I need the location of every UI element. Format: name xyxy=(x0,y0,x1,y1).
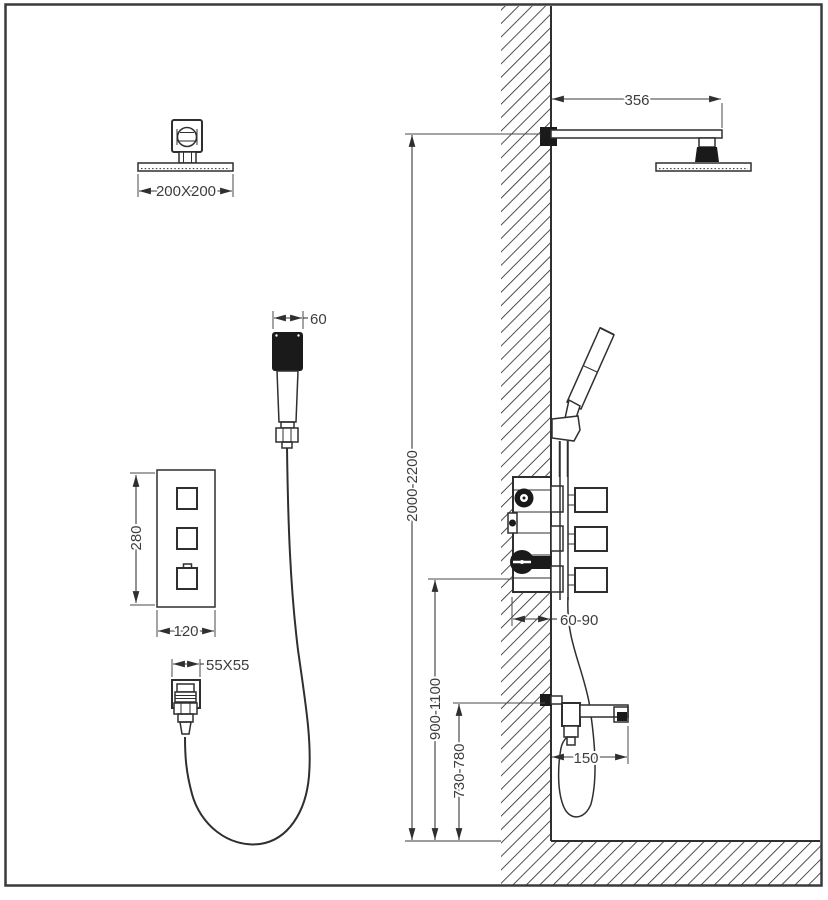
dim-panel-height: 280 xyxy=(128,473,155,605)
label-head-size: 200X200 xyxy=(156,183,216,200)
spout-side-view xyxy=(540,694,628,745)
shower-arm xyxy=(551,130,722,138)
ball-joint xyxy=(695,147,719,162)
shower-arm-side-view xyxy=(540,127,751,171)
label-panel-height: 280 xyxy=(128,525,145,550)
label-valve-height: 900-1100 xyxy=(427,678,444,740)
panel-button-2 xyxy=(177,528,197,549)
dim-panel-width: 120 xyxy=(157,610,215,640)
label-spout-height: 730-780 xyxy=(451,743,468,798)
panel-button-1 xyxy=(177,488,197,509)
spout-diverter xyxy=(564,726,578,737)
dim-valve-height: 900-1100 xyxy=(427,579,513,840)
diagram-canvas: 200X200 60 280 120 55X55 xyxy=(0,0,828,900)
floor-hatch xyxy=(551,841,821,885)
hand-shower-head xyxy=(272,332,303,371)
overhead-shower-front-view xyxy=(138,120,233,171)
dim-outlet-size: 55X55 xyxy=(172,657,249,677)
label-valve-depth: 60-90 xyxy=(560,612,598,629)
wall-outlet-front-view xyxy=(172,680,200,734)
label-spout-reach: 150 xyxy=(573,750,598,767)
diagram-page: 200X200 60 280 120 55X55 xyxy=(0,0,828,900)
holder-bracket xyxy=(552,416,580,441)
dim-handshower-width: 60 xyxy=(273,311,327,329)
control-panel-front-view xyxy=(157,470,215,607)
rain-head-plate xyxy=(656,163,751,171)
label-overhead-height: 2000-2200 xyxy=(404,450,421,522)
dimensions: 200X200 60 280 120 55X55 xyxy=(128,92,722,840)
spout-body xyxy=(562,703,580,726)
panel-button-3 xyxy=(177,568,197,589)
valve-handle-2 xyxy=(575,527,607,551)
hand-shower-handle xyxy=(277,371,298,422)
dim-head-size: 200X200 xyxy=(138,174,233,200)
valve-handle-1 xyxy=(575,488,607,512)
hand-shower-holder-side-view xyxy=(552,328,614,478)
valve-handle-3 xyxy=(575,568,607,592)
spout-wall-flange xyxy=(540,694,552,706)
label-arm-length: 356 xyxy=(624,92,649,109)
label-handshower-width: 60 xyxy=(310,311,327,328)
label-outlet-size: 55X55 xyxy=(206,657,249,674)
label-panel-width: 120 xyxy=(173,623,198,640)
hand-shower-front-view xyxy=(272,332,303,448)
dim-arm-length: 356 xyxy=(552,92,722,128)
